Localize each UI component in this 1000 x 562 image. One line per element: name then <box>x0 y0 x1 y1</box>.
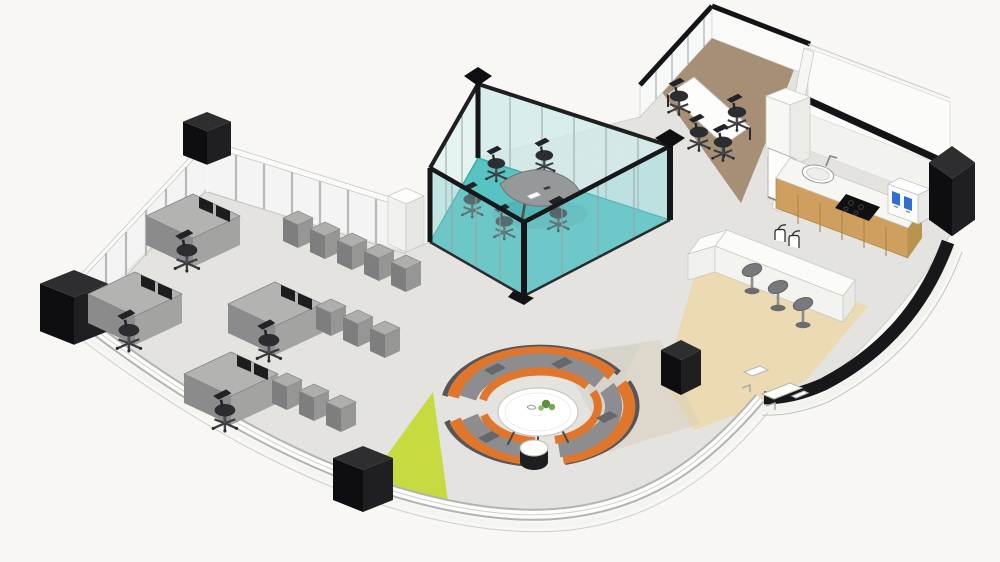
storage-cube[interactable] <box>337 233 367 270</box>
storage-cube[interactable] <box>283 211 313 248</box>
storage-cube[interactable] <box>364 244 394 281</box>
column-center <box>661 340 701 395</box>
floor-plan-canvas: Isometric 3D office floor plan rendering <box>0 0 1000 562</box>
wall-stub-west-of-pod <box>388 188 424 252</box>
storage-cube[interactable] <box>343 310 373 347</box>
column-east <box>929 146 975 236</box>
column-northwest <box>183 112 231 165</box>
storage-cube[interactable] <box>370 321 400 358</box>
storage-cube[interactable] <box>299 384 329 421</box>
floor-plan-stage: Isometric 3D office floor plan rendering <box>0 0 1000 562</box>
storage-cube[interactable] <box>316 299 346 336</box>
storage-cube[interactable] <box>272 373 302 410</box>
column-south <box>333 446 393 512</box>
storage-cube[interactable] <box>310 222 340 259</box>
storage-cube[interactable] <box>391 255 421 292</box>
storage-cube[interactable] <box>326 395 356 432</box>
side-table[interactable] <box>520 440 548 470</box>
